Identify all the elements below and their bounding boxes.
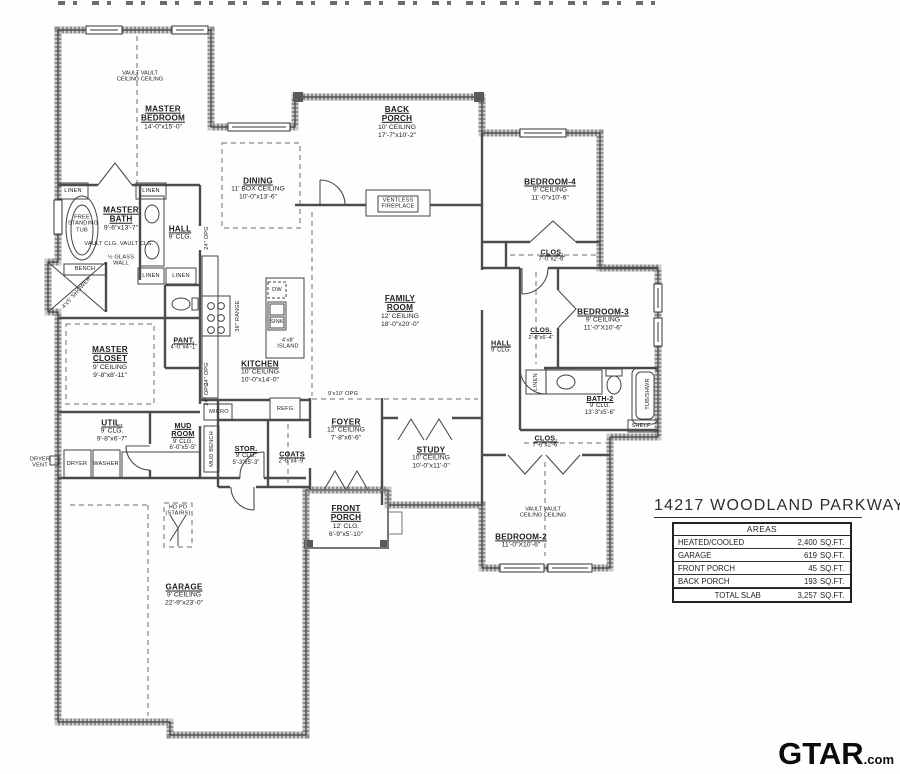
room-label-pantry: PANT. 4'-0"x4'-1" <box>171 336 198 351</box>
kitchen-sink-icon <box>268 302 286 330</box>
fixture-label-shelf: SHELF <box>631 423 650 429</box>
room-label-master-bath: MASTER BATH 9'-6"x13'-7" <box>100 206 142 233</box>
floor-plan-sheet: VAULT VAULT CEILING CEILING MASTER BEDRO… <box>0 0 900 774</box>
fixture-label-mud-bench: MUD BENCH <box>209 431 215 467</box>
areas-table-header: AREAS <box>674 524 850 536</box>
room-label-mud-room: MUD ROOM 9' CLG. 6'-0"x5'-5" <box>169 422 197 452</box>
fixture-label-range: 36" RANGE <box>235 300 241 331</box>
room-label-bedroom2: BEDROOM-2 11'-0"X10'-6" <box>495 532 547 549</box>
room-note-master-bath-vault: VAULT CLG. VAULT CLG. <box>84 241 153 247</box>
plan-title: 14217 WOODLAND PARKWAY <box>654 497 862 518</box>
fixture-label-dw: DW <box>272 287 282 293</box>
toilet-icon <box>606 369 622 376</box>
areas-table: AREAS HEATED/COOLED 2,400 SQ.FT. GARAGE … <box>672 522 852 603</box>
room-label-hall-left: HALL 9' CLG. <box>169 224 192 241</box>
areas-table-total-row: TOTAL SLAB 3,257 SQ.FT. <box>674 588 850 601</box>
areas-table-row: FRONT PORCH 45 SQ.FT. <box>674 562 850 575</box>
room-note-master-vault: VAULT VAULT CEILING CEILING <box>117 71 163 84</box>
gtar-watermark: GTAR .com <box>778 736 894 772</box>
room-note-bedroom2-vault: VAULT VAULT CEILING CEILING <box>520 507 566 520</box>
attic-stairs-icon <box>170 515 186 546</box>
fixture-label-dryer-vent: DRYER VENT <box>29 457 51 470</box>
fixture-label-linen: LINEN <box>533 373 539 390</box>
dashed-lines <box>66 36 606 716</box>
fixture-label-dryer: DRYER <box>67 461 87 467</box>
fixture-label-island: 4'x8' ISLAND <box>276 338 300 351</box>
fixture-label-linen: LINEN <box>64 188 81 194</box>
room-label-front-porch: FRONT PORCH 12' CLG. 6'-9"x5'-10" <box>328 504 364 538</box>
room-label-family-room: FAMILY ROOM 12' CEILING 18'-0"x20'-0" <box>380 294 420 328</box>
room-label-bedroom3: BEDROOM-3 9' CEILING 11'-0"X10'-6" <box>577 308 629 333</box>
room-label-clos-bed4: CLOS. 7'-0"x2'-6" <box>539 248 566 263</box>
fixture-label-fireplace: VENTLESS FIREPLACE <box>380 198 416 211</box>
room-label-back-porch: BACK PORCH 10' CEILING 17'-7"x10'-2" <box>378 105 416 139</box>
fixture-label-tub-shwr: TUB/SHWR <box>645 378 651 409</box>
fixture-label-tub: FREE STANDING TUB <box>68 214 96 233</box>
room-label-foyer: FOYER 12' CEILING 7'-8"x6'-6" <box>327 418 365 443</box>
sink-icon <box>145 205 159 223</box>
fixture-label-linen: LINEN <box>142 188 159 194</box>
floor-plan-drawing <box>0 0 900 774</box>
fixture-label-linen: LINEN <box>172 273 189 279</box>
fixture-label-stairs: HD PD (STAIRS) <box>165 505 191 518</box>
range-icon <box>202 296 230 336</box>
opening-label-24opg: 24" OPG <box>204 382 210 406</box>
cropped-dimension-ticks <box>58 1 658 5</box>
fixture-label-micro: MICRO <box>209 409 229 415</box>
utility-counter <box>122 452 200 478</box>
room-label-stor: STOR. 9' CLG. 5'-3"x5'-3" <box>233 445 260 467</box>
vanity <box>140 196 164 266</box>
opening-label-24opg: 24" OPG <box>204 226 210 250</box>
room-label-util: UTIL. 9' CLG. 9'-8"x6'-7" <box>97 419 127 444</box>
room-label-clos-bed2: CLOS. 7'-6"x2'-6" <box>533 434 560 449</box>
sink-icon <box>557 375 575 389</box>
areas-table-row: BACK PORCH 193 SQ.FT. <box>674 575 850 588</box>
toilet-icon <box>172 298 190 310</box>
gtar-logo: GTAR <box>778 736 864 772</box>
areas-table-row: GARAGE 619 SQ.FT. <box>674 549 850 562</box>
fixture-label-washer: WASHER <box>93 461 119 467</box>
room-label-garage: GARAGE 9' CEILING 22'-9"x23'-0" <box>165 583 203 608</box>
fixture-label-sink: SINK <box>270 319 284 325</box>
fixture-label-linen: LINEN <box>142 273 159 279</box>
fixture-label-glass-wall: ½ GLASS WALL <box>104 255 138 268</box>
room-label-clos-bed3: CLOS. 2'-0"x6'-4" <box>528 327 553 341</box>
opening-label-9x10opg: 9'x10' OPG <box>328 391 358 397</box>
room-label-master-bedroom: MASTER BEDROOM 14'-0"x15'-0" <box>137 105 189 132</box>
entry-stoop <box>388 512 402 534</box>
fixture-label-bench: BENCH <box>75 266 96 272</box>
areas-table-row: HEATED/COOLED 2,400 SQ.FT. <box>674 536 850 549</box>
room-label-bedroom4: BEDROOM-4 9' CEILING 11'-0"x10'-6" <box>524 178 576 203</box>
fixture-label-refg: REFG. <box>277 406 295 412</box>
room-label-dining: DINING 11' BOX CEILING 10'-0"x13'-6" <box>231 177 285 202</box>
room-label-master-closet: MASTER CLOSET 9' CEILING 9'-8"x8'-11" <box>87 345 133 379</box>
room-label-kitchen: KITCHEN 10' CEILING 10'-0"x14'-0" <box>241 360 279 385</box>
room-label-study: STUDY 10' CEILING 10'-0"x11'-0" <box>412 446 450 471</box>
room-label-coats: COATS 2'-6"x4'-9" <box>279 450 306 465</box>
room-label-bath2: BATH-2 9' CLG. 13'-3"x5'-6" <box>585 395 615 417</box>
room-label-hall-right: HALL 9' CLG. <box>491 339 511 354</box>
